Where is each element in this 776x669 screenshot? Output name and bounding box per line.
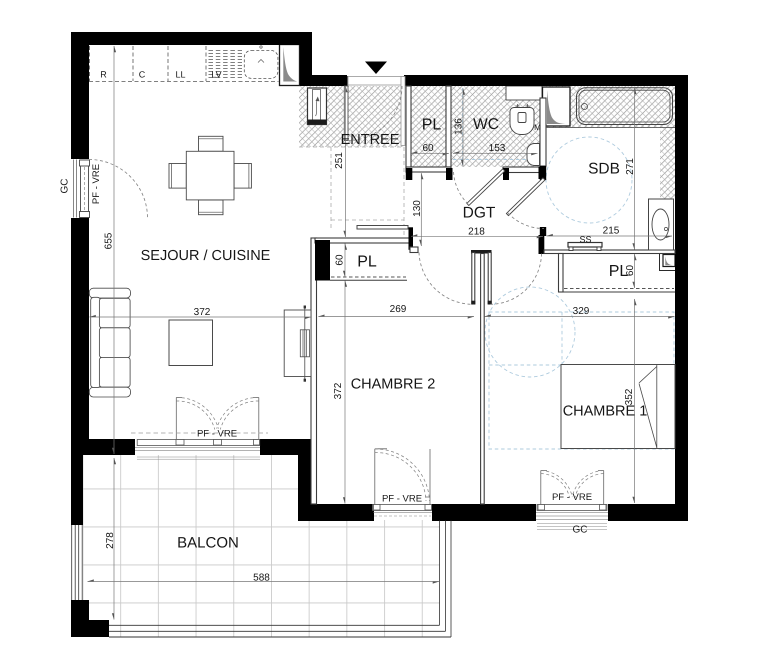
- svg-text:PF - VRE: PF - VRE: [91, 164, 102, 204]
- svg-text:329: 329: [573, 306, 590, 317]
- svg-text:271: 271: [625, 158, 636, 175]
- svg-text:655: 655: [104, 232, 115, 249]
- svg-text:CHAMBRE 1: CHAMBRE 1: [563, 404, 648, 420]
- svg-text:153: 153: [489, 143, 506, 154]
- svg-text:CHAMBRE 2: CHAMBRE 2: [351, 377, 436, 393]
- svg-text:GC: GC: [573, 525, 588, 536]
- svg-text:60: 60: [422, 143, 434, 154]
- svg-text:PL: PL: [609, 263, 629, 280]
- svg-text:SS: SS: [579, 235, 591, 245]
- svg-text:PL: PL: [422, 117, 442, 134]
- svg-text:588: 588: [253, 573, 270, 584]
- svg-text:LL: LL: [175, 70, 185, 80]
- svg-text:SDB: SDB: [588, 161, 620, 178]
- svg-text:278: 278: [105, 532, 116, 549]
- svg-text:WC: WC: [473, 116, 499, 133]
- svg-text:PF - VRE: PF - VRE: [197, 429, 237, 440]
- svg-text:DGT: DGT: [463, 205, 496, 222]
- svg-text:LV: LV: [211, 70, 221, 80]
- svg-text:372: 372: [194, 307, 211, 318]
- svg-text:269: 269: [390, 304, 407, 315]
- svg-text:BALCON: BALCON: [177, 535, 239, 552]
- svg-text:C: C: [139, 70, 146, 80]
- svg-text:R: R: [100, 70, 107, 80]
- svg-text:372: 372: [333, 382, 344, 399]
- svg-text:PL: PL: [357, 254, 377, 271]
- svg-text:M: M: [534, 123, 541, 132]
- svg-text:215: 215: [603, 226, 620, 237]
- svg-text:PF - VRE: PF - VRE: [382, 494, 422, 505]
- svg-text:136: 136: [454, 118, 465, 135]
- svg-text:ENTREE: ENTREE: [341, 132, 400, 148]
- svg-text:218: 218: [468, 227, 485, 238]
- svg-text:PF - VRE: PF - VRE: [552, 492, 592, 503]
- svg-text:GC: GC: [60, 179, 71, 194]
- svg-text:130: 130: [412, 200, 423, 217]
- svg-text:251: 251: [334, 152, 345, 169]
- svg-text:60: 60: [335, 254, 346, 266]
- svg-text:SEJOUR / CUISINE: SEJOUR / CUISINE: [141, 248, 271, 264]
